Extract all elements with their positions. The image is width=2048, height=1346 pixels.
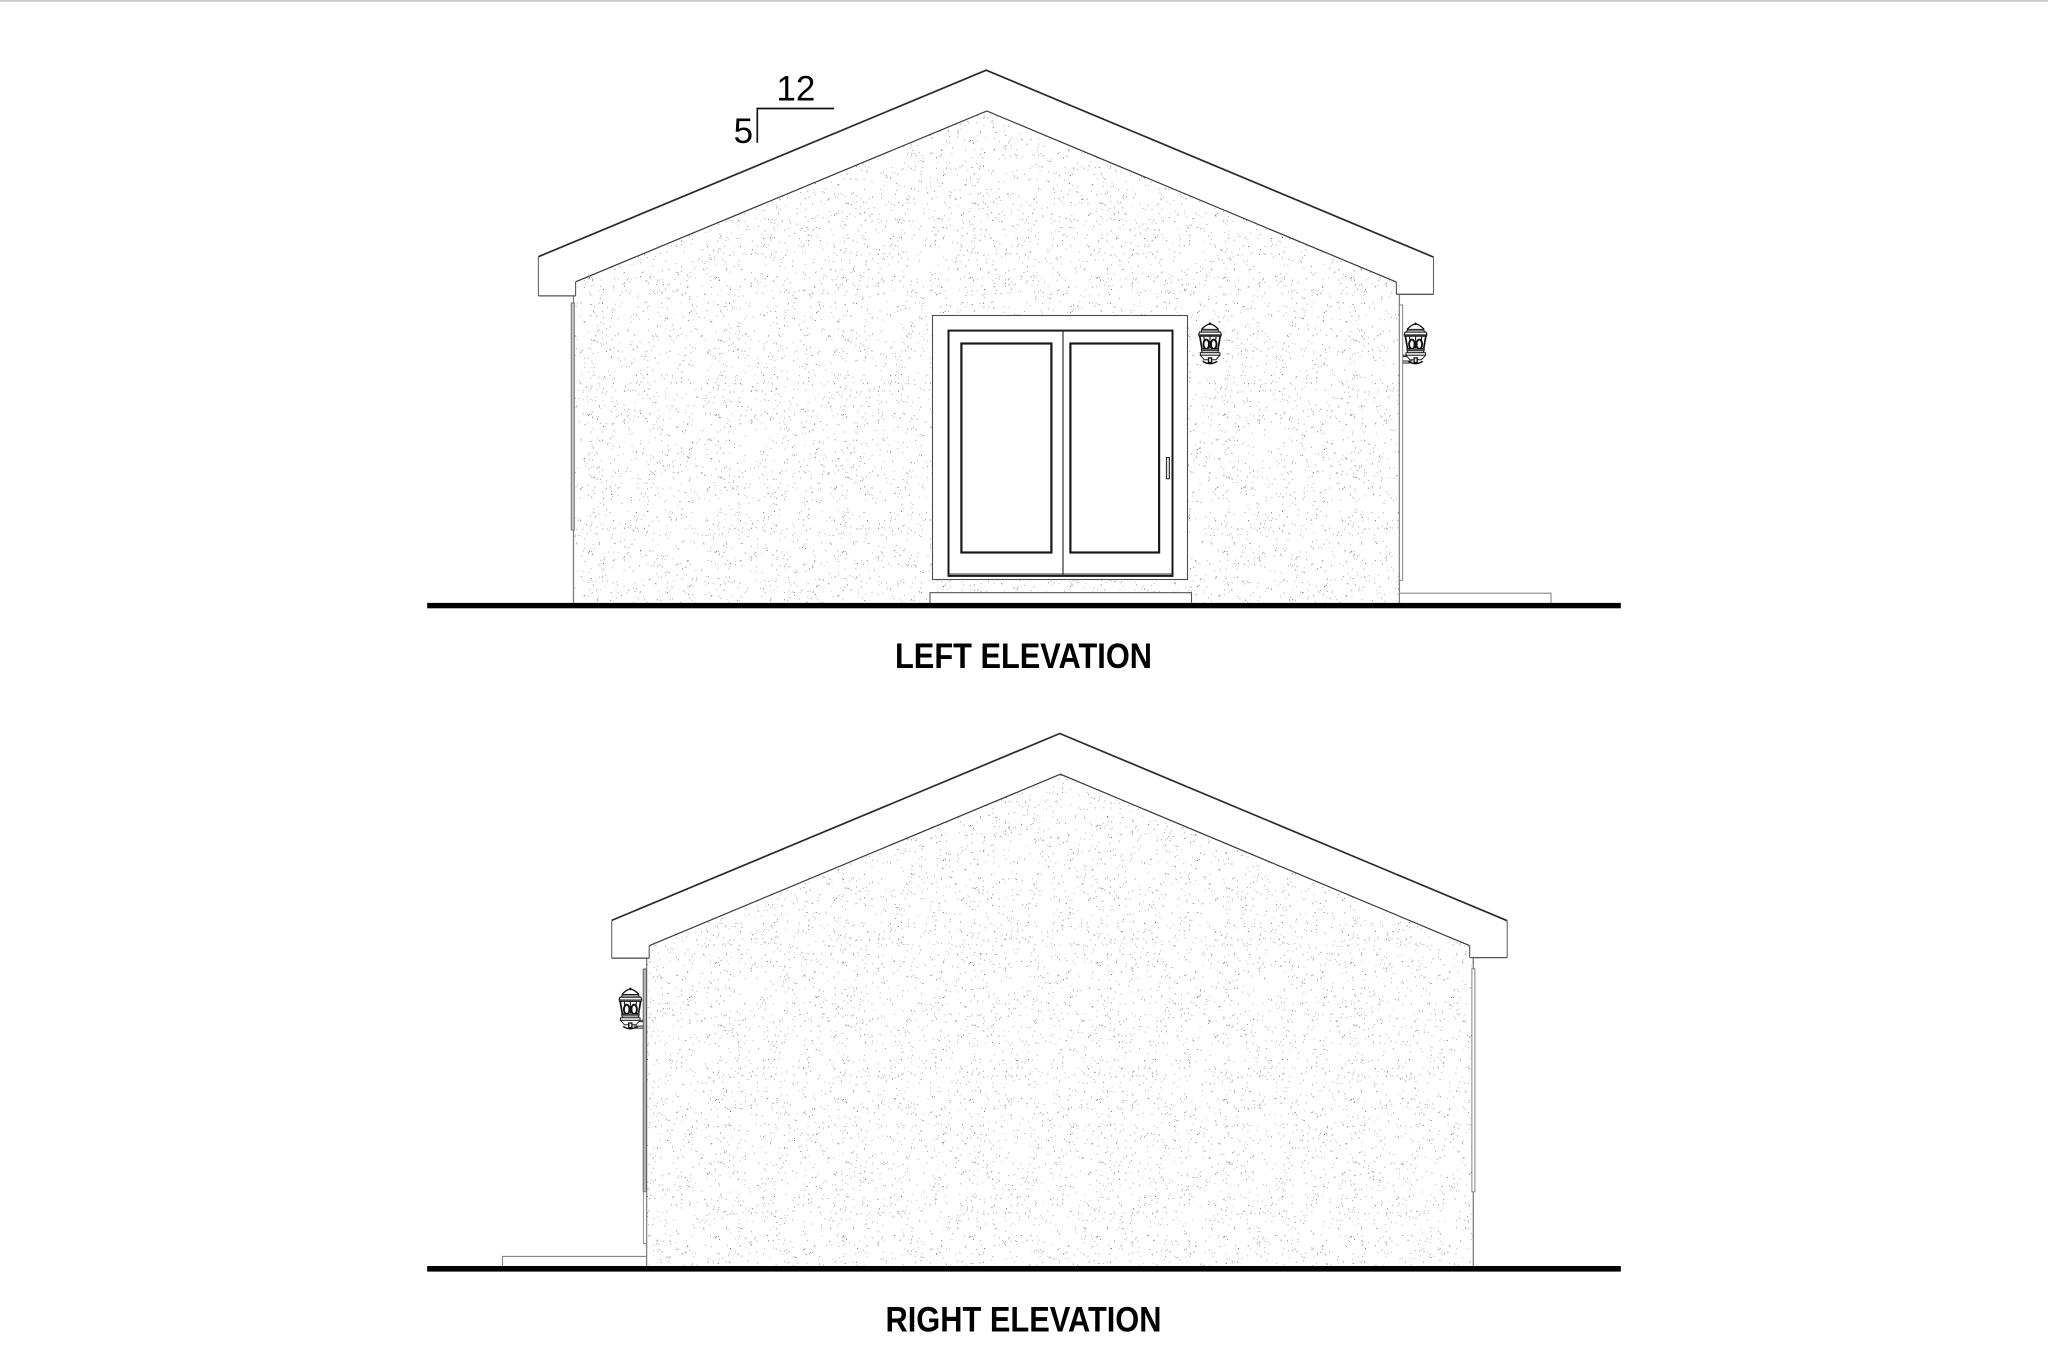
svg-text:RIGHT ELEVATION: RIGHT ELEVATION — [886, 1300, 1162, 1339]
svg-text:5: 5 — [734, 112, 753, 151]
svg-text:12: 12 — [776, 70, 815, 109]
svg-text:LEFT ELEVATION: LEFT ELEVATION — [895, 637, 1152, 676]
